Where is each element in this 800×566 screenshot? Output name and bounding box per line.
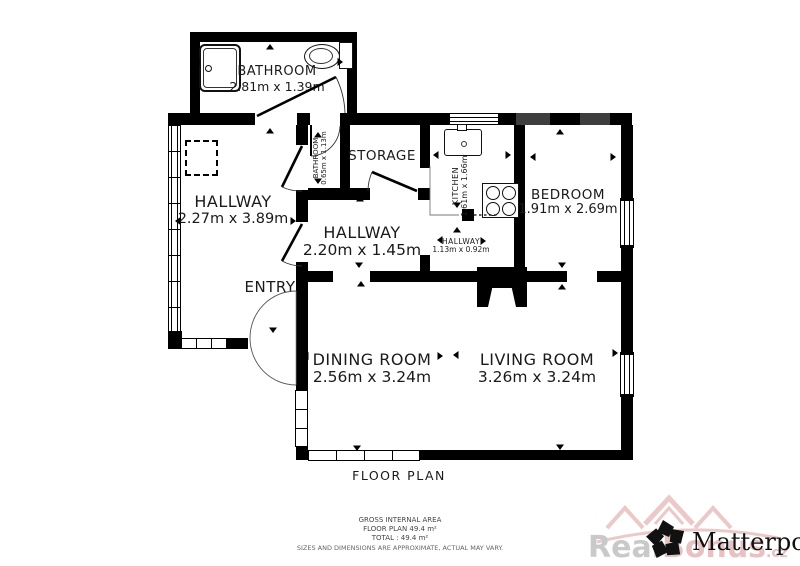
window	[620, 352, 634, 397]
door-leaf	[372, 172, 417, 191]
dimension-arrow	[558, 284, 566, 290]
wall	[190, 32, 357, 42]
room-dims: 1.91m x 2.69m	[508, 203, 628, 218]
room-name: LIVING ROOM	[474, 351, 600, 369]
wall	[297, 113, 310, 125]
room-label-hallway-mid: HALLWAY 2.20m x 1.45m	[299, 224, 425, 259]
burner	[486, 202, 500, 216]
room-name: DINING ROOM	[309, 351, 435, 369]
dimension-arrow	[269, 328, 277, 334]
dimension-arrow	[530, 153, 536, 161]
wall	[308, 271, 333, 282]
window-frame	[171, 126, 178, 331]
wall	[418, 188, 430, 200]
wall	[168, 331, 182, 349]
wall	[340, 113, 448, 125]
burner	[486, 186, 500, 200]
wall	[227, 338, 248, 349]
room-name: STORAGE	[342, 149, 422, 164]
dimension-arrow	[611, 153, 617, 161]
window-frame	[624, 355, 630, 394]
footer-line-gross: GROSS INTERNAL AREA	[250, 516, 550, 525]
dimension-arrow	[266, 128, 274, 134]
room-label-kitchen: KITCHEN 1.61m x 1.66m	[452, 134, 472, 238]
wall	[516, 113, 550, 125]
dimension-arrow	[613, 349, 619, 357]
door-arc	[250, 338, 296, 385]
room-label-hallway-small: HALLWAY 1.13m x 0.92m	[424, 238, 498, 255]
wall	[580, 113, 610, 125]
room-label-bathroom-top: BATHROOM 2.81m x 1.39m	[202, 65, 352, 94]
room-label-bathroom-small: BATHROOM 0.65m x 1.13m	[313, 124, 331, 192]
dimension-arrow	[558, 263, 566, 269]
room-label-entry: ENTRY	[240, 279, 300, 296]
room-label-living: LIVING ROOM 3.26m x 3.24m	[474, 351, 600, 386]
door-leaf	[282, 146, 302, 187]
dimension-arrow	[506, 151, 512, 159]
room-name: BEDROOM	[508, 188, 628, 203]
dimension-arrow	[433, 151, 439, 159]
room-dims: 2.56m x 3.24m	[309, 369, 435, 386]
room-label-dining: DINING ROOM 2.56m x 3.24m	[309, 351, 435, 386]
room-label-storage: STORAGE	[342, 149, 422, 164]
footer-summary: GROSS INTERNAL AREA FLOOR PLAN 49.4 m² T…	[250, 516, 550, 553]
footer-line-total: TOTAL : 49.4 m²	[250, 534, 550, 543]
room-dims: 1.61m x 1.66m	[461, 134, 470, 238]
room-dims: 2.81m x 1.39m	[202, 80, 352, 94]
wall	[168, 113, 255, 125]
skylight-dashed-box	[185, 140, 218, 176]
dimension-arrow	[355, 263, 363, 269]
room-name: HALLWAY	[299, 224, 425, 242]
room-dims: 1.13m x 0.92m	[424, 246, 498, 254]
footer-line-disclaimer: SIZES AND DIMENSIONS ARE APPROXIMATE, AC…	[250, 543, 550, 553]
room-dims: 2.27m x 3.89m	[163, 211, 303, 227]
door-arc	[250, 291, 296, 338]
dimension-arrow	[357, 281, 365, 287]
matterport-logo-text: Matterport®	[692, 528, 800, 556]
matterport-logo-icon	[642, 516, 690, 564]
window	[308, 450, 420, 461]
room-dims: 2.20m x 1.45m	[299, 242, 425, 259]
window	[295, 390, 308, 447]
dimension-arrow	[266, 44, 274, 50]
room-name: ENTRY	[240, 279, 300, 296]
matterport-wordmark: Matterport	[692, 528, 800, 556]
room-dims: 0.65m x 1.13m	[321, 124, 329, 192]
window	[181, 338, 228, 349]
room-name: HALLWAY	[163, 193, 303, 211]
room-label-hallway-left: HALLWAY 2.27m x 3.89m	[163, 193, 303, 227]
dimension-arrow	[438, 352, 444, 360]
dimension-arrow	[453, 351, 459, 359]
room-dims: 3.26m x 3.24m	[474, 369, 600, 386]
window	[168, 125, 181, 332]
fireplace-notch	[488, 288, 516, 307]
plan-title: FLOOR PLAN	[339, 469, 459, 483]
room-name: BATHROOM	[202, 65, 352, 80]
toilet-seat	[309, 48, 333, 64]
wall	[420, 450, 632, 460]
window	[448, 113, 500, 125]
wall	[370, 271, 567, 282]
wall	[296, 125, 308, 145]
dimension-arrow	[556, 129, 564, 135]
floor-plan-page: BATHROOM 2.81m x 1.39m HALLWAY 2.27m x 3…	[0, 0, 800, 566]
footer-line-floorplan: FLOOR PLAN 49.4 m²	[250, 525, 550, 534]
room-label-bedroom: BEDROOM 1.91m x 2.69m	[508, 188, 628, 218]
wall	[621, 247, 633, 352]
sink-faucet	[457, 124, 467, 131]
